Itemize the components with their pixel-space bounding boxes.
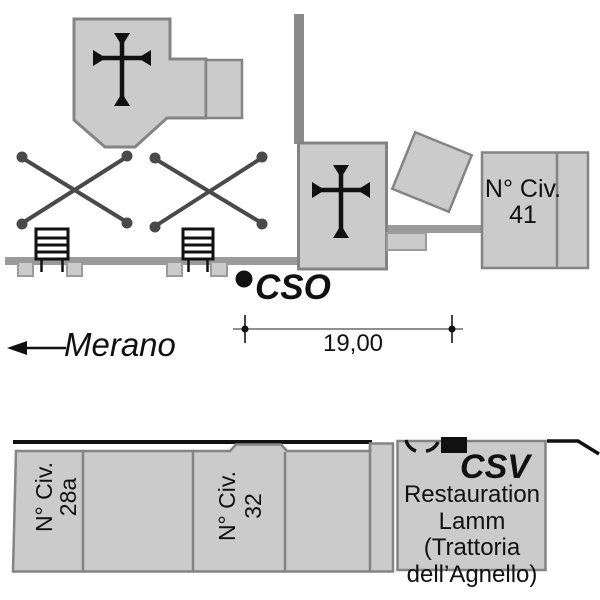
civ41-line1: N° Civ.: [479, 176, 567, 202]
restaurant-line3: (Trattoria: [396, 535, 548, 562]
west-arrow-icon: [7, 341, 66, 355]
wall-north-bar: [294, 14, 304, 144]
stairs-icon: [36, 229, 68, 272]
church-annex: [206, 60, 242, 118]
building-civ28a-label: N° Civ. 28a: [32, 462, 80, 532]
civ28a-line1: N° Civ.: [32, 462, 56, 532]
site-sketch: Merano CSO 19,00 N° Civ. 41 N° Civ. 28a …: [0, 0, 600, 600]
chapel-small-annex: [387, 233, 426, 250]
crossed-lines-field-icon: [150, 152, 268, 233]
direction-label: Merano: [64, 326, 176, 364]
civ41-line2: 41: [479, 202, 567, 228]
civ32-line2: 32: [240, 471, 266, 541]
civ28a-line2: 28a: [56, 462, 80, 532]
restaurant-label: Restauration Lamm (Trattoria dell’Agnell…: [396, 482, 548, 588]
stairs-icon: [183, 229, 213, 272]
dimension-value: 19,00: [293, 330, 413, 358]
crossed-lines-field-icon: [17, 151, 133, 230]
restaurant-line4: dell’Agnello): [396, 562, 548, 589]
wall-east-bar: [387, 225, 482, 233]
building-civ32-label: N° Civ. 32: [214, 471, 266, 541]
restaurant-line2: Lamm: [396, 509, 548, 536]
building-civ41-label: N° Civ. 41: [479, 176, 567, 228]
restaurant-line1: Restauration: [396, 482, 548, 509]
rotated-building: [392, 132, 471, 211]
survey-point-dot-icon: [236, 271, 253, 288]
point-label-cso: CSO: [255, 268, 331, 308]
church-building: [74, 19, 206, 147]
civ32-line1: N° Civ.: [214, 471, 240, 541]
street-edge-south-east: [547, 441, 599, 454]
